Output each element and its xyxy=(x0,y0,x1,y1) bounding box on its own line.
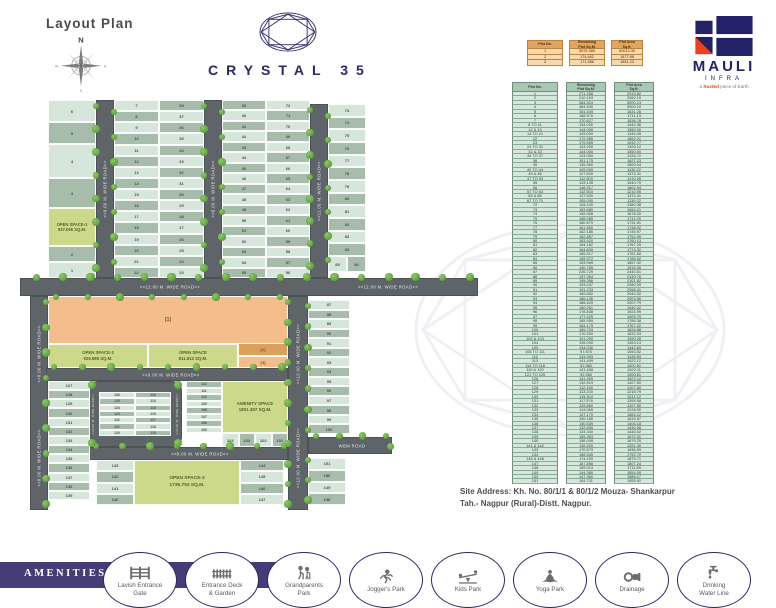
plot-120: 120 xyxy=(99,430,135,436)
plot-127: 127 xyxy=(48,381,90,390)
tree-icon xyxy=(330,273,339,282)
plot-91: 91 xyxy=(308,338,350,348)
tree-icon xyxy=(86,273,95,282)
tree-icon xyxy=(88,381,96,389)
plot-147: 147 xyxy=(240,494,284,505)
tree-icon xyxy=(51,364,57,370)
amenity-label: Drinking Water Line xyxy=(699,582,729,598)
tree-icon xyxy=(324,232,332,240)
plot-135: 135 xyxy=(48,454,90,463)
tree-icon xyxy=(88,439,96,447)
road-label: <<9.00 M. WIDE ROAD>> xyxy=(37,325,42,383)
tree-icon xyxy=(149,294,155,300)
tree-icon xyxy=(218,158,226,166)
plot-78: 78 xyxy=(328,167,366,180)
tree-icon xyxy=(167,273,176,282)
drinking-water-icon xyxy=(703,564,725,581)
plot-49: 49 xyxy=(222,205,266,215)
plot-76: 76 xyxy=(328,142,366,155)
tree-icon xyxy=(284,500,291,507)
plot-73: 73 xyxy=(328,104,366,117)
plot-14: 14 xyxy=(114,178,159,189)
plot-24: 24 xyxy=(159,256,204,267)
tree-icon xyxy=(306,262,313,269)
plot-79: 79 xyxy=(328,180,366,193)
plot-19: 19 xyxy=(114,234,159,245)
plot-6: 6 xyxy=(48,100,96,122)
tree-icon xyxy=(33,274,40,281)
plot-44: 44 xyxy=(222,152,266,162)
plot-74: 74 xyxy=(328,117,366,130)
road-label: <<9.00 M. WIDE ROAD>> xyxy=(171,451,229,456)
plot-99: 99 xyxy=(308,415,350,425)
tree-icon xyxy=(218,233,226,241)
plot-48: 48 xyxy=(222,194,266,204)
tree-icon xyxy=(110,158,118,166)
open-space-area: 937.096 SQ.M. xyxy=(58,227,86,232)
plot-143: 143 xyxy=(96,460,134,471)
tree-icon xyxy=(303,273,311,281)
tree-icon xyxy=(193,363,201,371)
road-label: <<12.00 M. WIDE ROAD>> xyxy=(296,428,301,488)
plot-134: 134 xyxy=(48,445,90,454)
tree-icon xyxy=(42,348,50,356)
plot-12: 12 xyxy=(114,156,159,167)
plot-138: 138 xyxy=(48,482,90,491)
plot-39: 39 xyxy=(222,100,266,110)
table-cell: 1851.23 xyxy=(611,60,643,66)
amenity-label: Jogger's Park xyxy=(367,586,405,594)
amenity-label: Entrance Deck & Garden xyxy=(202,582,243,598)
plot-10: 10 xyxy=(114,133,159,144)
plot-128: 128 xyxy=(48,390,90,399)
tree-icon xyxy=(200,264,207,271)
plot-25: 25 xyxy=(159,245,204,256)
tree-icon xyxy=(107,363,115,371)
table-header: Remaining Plot Sq.M. xyxy=(566,82,606,92)
table-header: Plot No. xyxy=(527,40,563,49)
tree-icon xyxy=(325,185,331,191)
table-column: Plot Area Sq.ft.60013.391877.881851.23 xyxy=(611,40,643,66)
tree-icon xyxy=(92,195,99,202)
road-label: <<9.00 M. WIDE ROAD>> xyxy=(103,160,108,218)
plot-146: 146 xyxy=(240,483,284,494)
plot-27: 27 xyxy=(159,222,204,233)
tree-icon xyxy=(305,427,311,433)
tree-icon xyxy=(245,294,251,300)
plot-83: 83 xyxy=(328,231,366,244)
plot-84: 84 xyxy=(328,243,366,256)
tree-icon xyxy=(305,457,311,463)
tree-icon xyxy=(304,406,312,414)
road-label: <<9.00 M. WIDE ROAD>> xyxy=(91,393,95,434)
tree-icon xyxy=(336,433,343,440)
plot-53: 53 xyxy=(222,247,266,257)
tree-icon xyxy=(92,218,100,226)
kids-park-icon xyxy=(457,568,479,585)
tree-icon xyxy=(219,259,225,265)
tree-icon xyxy=(278,363,286,371)
plot-57: 57 xyxy=(266,257,310,267)
site-address-line2: Tah.- Nagpur (Rural)-Distt. Nagpur. xyxy=(460,498,760,510)
tree-icon xyxy=(284,399,292,407)
plot-62: 62 xyxy=(266,205,310,215)
plot-21: 21 xyxy=(114,256,159,267)
tree-icon xyxy=(43,450,50,457)
plot-98: 98 xyxy=(308,405,350,415)
entrance-gate-icon xyxy=(129,564,151,581)
tree-icon xyxy=(284,460,292,468)
tree-icon xyxy=(222,364,228,370)
plot-29: 29 xyxy=(159,200,204,211)
tree-icon xyxy=(284,379,291,386)
tree-icon xyxy=(306,129,313,136)
tree-icon xyxy=(324,160,332,168)
plot-81: 81 xyxy=(328,205,366,218)
plot-36: 36 xyxy=(159,122,204,133)
tree-icon xyxy=(313,433,319,439)
tree-icon xyxy=(93,172,100,179)
tree-icon xyxy=(114,274,121,281)
tree-icon xyxy=(358,274,365,281)
table-column: Remaining Plot Sq.M.5575.380174.462171.9… xyxy=(569,40,605,66)
plot-35: 35 xyxy=(159,133,204,144)
tree-icon xyxy=(146,442,154,450)
plot-33: 33 xyxy=(159,156,204,167)
plot-94: 94 xyxy=(308,367,350,377)
plot-96: 96 xyxy=(308,386,350,396)
tree-icon xyxy=(92,264,99,271)
tree-icon xyxy=(53,294,59,300)
plot-92: 92 xyxy=(308,348,350,358)
plot-8: 8 xyxy=(114,111,159,122)
tree-icon xyxy=(59,273,67,281)
tree-icon xyxy=(200,125,207,132)
tree-icon xyxy=(277,274,284,281)
plot-90: 90 xyxy=(308,329,350,339)
plot-88: 88 xyxy=(308,310,350,320)
open-space-amenity: AMENITY SPACE1801.397 SQ.M. xyxy=(222,381,288,433)
road-label: <<12.00 M. WIDE ROAD>> xyxy=(358,285,418,290)
plot-34: 34 xyxy=(159,145,204,156)
tree-icon xyxy=(325,113,331,119)
tree-icon xyxy=(137,364,143,370)
plot-reserved-2: [2] xyxy=(238,343,288,356)
table-cell: 181.711 xyxy=(566,479,606,483)
road-label: <<12.00 M. WIDE ROAD>> xyxy=(296,324,301,384)
table-column: Plot No.123 xyxy=(527,40,563,66)
layout-plan-page: Layout Plan N W E S xyxy=(0,0,776,600)
site-address-line1: Site Address: Kh. No. 80/1/1 & 80/1/2 Mo… xyxy=(460,486,760,498)
plot-54: 54 xyxy=(222,257,266,267)
plot-133: 133 xyxy=(48,436,90,445)
plot-119: 119 xyxy=(135,430,171,436)
open-space-area: 811.513 SQ.M. xyxy=(179,356,208,362)
plot-65: 65 xyxy=(266,173,310,183)
plot-61: 61 xyxy=(266,215,310,225)
plot-4: 4 xyxy=(48,144,96,178)
plot-15: 15 xyxy=(114,189,159,200)
open-space-os2: OPEN SPACE-2926.986 SQ.M. xyxy=(48,344,148,368)
tree-icon xyxy=(110,233,118,241)
plot-141: 141 xyxy=(96,483,134,494)
tree-icon xyxy=(306,195,313,202)
plot-7: 7 xyxy=(114,100,159,111)
plot-77: 77 xyxy=(328,155,366,168)
plot-103: 103 xyxy=(239,433,256,447)
tree-icon xyxy=(304,496,312,504)
open-space-area: 1801.397 SQ.M. xyxy=(239,407,272,413)
plot-11: 11 xyxy=(114,145,159,156)
amenity-label: Grandparents Park xyxy=(285,582,323,598)
plot-131: 131 xyxy=(48,418,90,427)
plot-82: 82 xyxy=(328,218,366,231)
road-label: WBM ROAD xyxy=(339,443,366,448)
yoga-park-icon xyxy=(539,568,561,585)
plot-129: 129 xyxy=(48,399,90,408)
plot-26: 26 xyxy=(159,234,204,245)
plot-20: 20 xyxy=(114,245,159,256)
plot-63: 63 xyxy=(266,194,310,204)
plot-42: 42 xyxy=(222,131,266,141)
plot-52: 52 xyxy=(222,236,266,246)
plot-89: 89 xyxy=(308,319,350,329)
road-label: <<9.00 M. WIDE ROAD>> xyxy=(211,160,216,218)
tree-icon xyxy=(42,324,49,331)
plot-60: 60 xyxy=(266,226,310,236)
tree-icon xyxy=(385,273,393,281)
table-column: Plot No.12345678 TO 1112 & 1314 TO 21222… xyxy=(512,82,558,484)
plot-86: 86 xyxy=(347,256,366,272)
amenities-band-label: AMENITIES xyxy=(24,568,107,579)
plot-97: 97 xyxy=(308,396,350,406)
road-label: <<9.00 M. WIDE ROAD>> xyxy=(142,372,200,377)
table-cell: 151 xyxy=(512,479,558,483)
plot-18: 18 xyxy=(114,222,159,233)
tree-icon xyxy=(387,443,394,450)
plot-3: 3 xyxy=(48,178,96,208)
table-header: Plot Area Sq.ft. xyxy=(614,82,654,92)
plot-87: 87 xyxy=(308,300,350,310)
plot-142: 142 xyxy=(96,471,134,482)
tree-icon xyxy=(116,293,124,301)
tree-icon xyxy=(305,365,311,371)
plot-136: 136 xyxy=(48,463,90,472)
plot-58: 58 xyxy=(266,247,310,257)
plot-reserved-1: [1] xyxy=(48,296,288,344)
amenity-label: Kids Park xyxy=(455,586,481,594)
road-label: <<9.00 M. WIDE ROAD>> xyxy=(37,429,42,487)
plot-70: 70 xyxy=(266,121,310,131)
plot-41: 41 xyxy=(222,121,266,131)
plot-75: 75 xyxy=(328,129,366,142)
tree-icon xyxy=(111,259,117,265)
road-label: <<12.00 M. WIDE ROAD>> xyxy=(140,285,200,290)
plot-72: 72 xyxy=(266,100,310,110)
plot-40: 40 xyxy=(222,110,266,120)
tree-icon xyxy=(92,125,99,132)
plot-130: 130 xyxy=(48,408,90,417)
plot-9: 9 xyxy=(114,122,159,133)
plot-46: 46 xyxy=(222,173,266,183)
grandparents-park-icon xyxy=(293,564,315,581)
plot-149: 149 xyxy=(308,482,346,494)
joggers-park-icon xyxy=(375,568,397,585)
tree-icon xyxy=(226,442,234,450)
plot-50: 50 xyxy=(222,215,266,225)
table-column: Plot Area Sq.ft.2919.822262.195000.13500… xyxy=(614,82,654,484)
table-cell: 3 xyxy=(527,60,563,66)
site-address: Site Address: Kh. No. 80/1/1 & 80/1/2 Mo… xyxy=(460,486,760,510)
tree-icon xyxy=(42,475,49,482)
tree-icon xyxy=(383,433,389,439)
open-space-area: 926.986 SQ.M. xyxy=(84,356,113,362)
tree-icon xyxy=(305,303,311,309)
plot-38: 38 xyxy=(159,100,204,111)
tree-icon xyxy=(200,443,207,450)
tree-icon xyxy=(42,500,50,508)
tree-icon xyxy=(219,184,225,190)
plot-67: 67 xyxy=(266,152,310,162)
plot-132: 132 xyxy=(48,427,90,436)
plot-43: 43 xyxy=(222,142,266,152)
plot-139: 139 xyxy=(48,491,90,500)
plot-66: 66 xyxy=(266,163,310,173)
road-label: <<9.00 M. WIDE ROAD>> xyxy=(175,393,179,434)
tree-icon xyxy=(466,273,474,281)
tree-icon xyxy=(174,439,182,447)
plot-32: 32 xyxy=(159,167,204,178)
tree-icon xyxy=(306,151,314,159)
plot-71: 71 xyxy=(266,110,310,120)
amenity-label: Yoga Park xyxy=(536,586,564,594)
plot-64: 64 xyxy=(266,184,310,194)
plot-5: 5 xyxy=(48,122,96,144)
tree-icon xyxy=(195,274,202,281)
plot-105: 105 xyxy=(186,427,222,434)
plot-148: 148 xyxy=(308,493,346,505)
tree-icon xyxy=(304,344,312,352)
plot-2: 2 xyxy=(48,246,96,262)
drainage-icon xyxy=(621,568,643,585)
plot-51: 51 xyxy=(222,226,266,236)
plot-145: 145 xyxy=(240,471,284,482)
tree-icon xyxy=(325,257,331,263)
table-header: Plot Area Sq.ft. xyxy=(611,40,643,49)
plot-13: 13 xyxy=(114,167,159,178)
plot-69: 69 xyxy=(266,131,310,141)
plot-151: 151 xyxy=(308,458,346,470)
plot-144: 144 xyxy=(240,460,284,471)
amenity-label: Drainage xyxy=(619,586,644,594)
table-header: Plot No. xyxy=(512,82,558,92)
plot-16: 16 xyxy=(114,200,159,211)
plot-137: 137 xyxy=(48,473,90,482)
tree-icon xyxy=(111,184,117,190)
tree-icon xyxy=(212,293,220,301)
open-space-os3: OPEN SPACE-31735.753 SQ.M. xyxy=(134,460,240,505)
tree-icon xyxy=(111,109,117,115)
plot-31: 31 xyxy=(159,178,204,189)
plot-140: 140 xyxy=(96,494,134,505)
amenity-label: Lavish Entrance Gate xyxy=(118,582,162,598)
entrance-deck-garden-icon xyxy=(211,564,233,581)
open-space-os1: OPEN SPACE-1937.096 SQ.M. xyxy=(48,208,96,246)
layout-plan-map: <<12.00 M. WIDE ROAD>><<12.00 M. WIDE RO… xyxy=(0,0,776,600)
plot-80: 80 xyxy=(328,193,366,206)
plot-59: 59 xyxy=(266,236,310,246)
plot-30: 30 xyxy=(159,189,204,200)
tree-icon xyxy=(284,319,291,326)
table-cell: 1955.92 xyxy=(614,479,654,483)
plot-68: 68 xyxy=(266,142,310,152)
plot-17: 17 xyxy=(114,211,159,222)
tree-icon xyxy=(200,195,207,202)
plot-95: 95 xyxy=(308,377,350,387)
plot-93: 93 xyxy=(308,357,350,367)
table-cell: 171.986 xyxy=(569,60,605,66)
table-header: Remaining Plot Sq.M. xyxy=(569,40,605,49)
plot-150: 150 xyxy=(308,470,346,482)
open-space-area: 1735.753 SQ.M. xyxy=(170,483,205,489)
plot-45: 45 xyxy=(222,163,266,173)
tree-icon xyxy=(201,172,208,179)
tree-icon xyxy=(42,399,49,406)
tree-icon xyxy=(200,218,208,226)
tree-icon xyxy=(174,381,182,389)
tree-icon xyxy=(219,109,225,115)
road-label: <<11.00 M. WIDE ROAD>> xyxy=(317,161,322,221)
plot-37: 37 xyxy=(159,111,204,122)
tree-icon xyxy=(222,273,230,281)
table-column: Remaining Plot Sq.M.271.258210.163464.52… xyxy=(566,82,606,484)
tree-icon xyxy=(439,274,446,281)
plot-28: 28 xyxy=(159,211,204,222)
plot-47: 47 xyxy=(222,184,266,194)
